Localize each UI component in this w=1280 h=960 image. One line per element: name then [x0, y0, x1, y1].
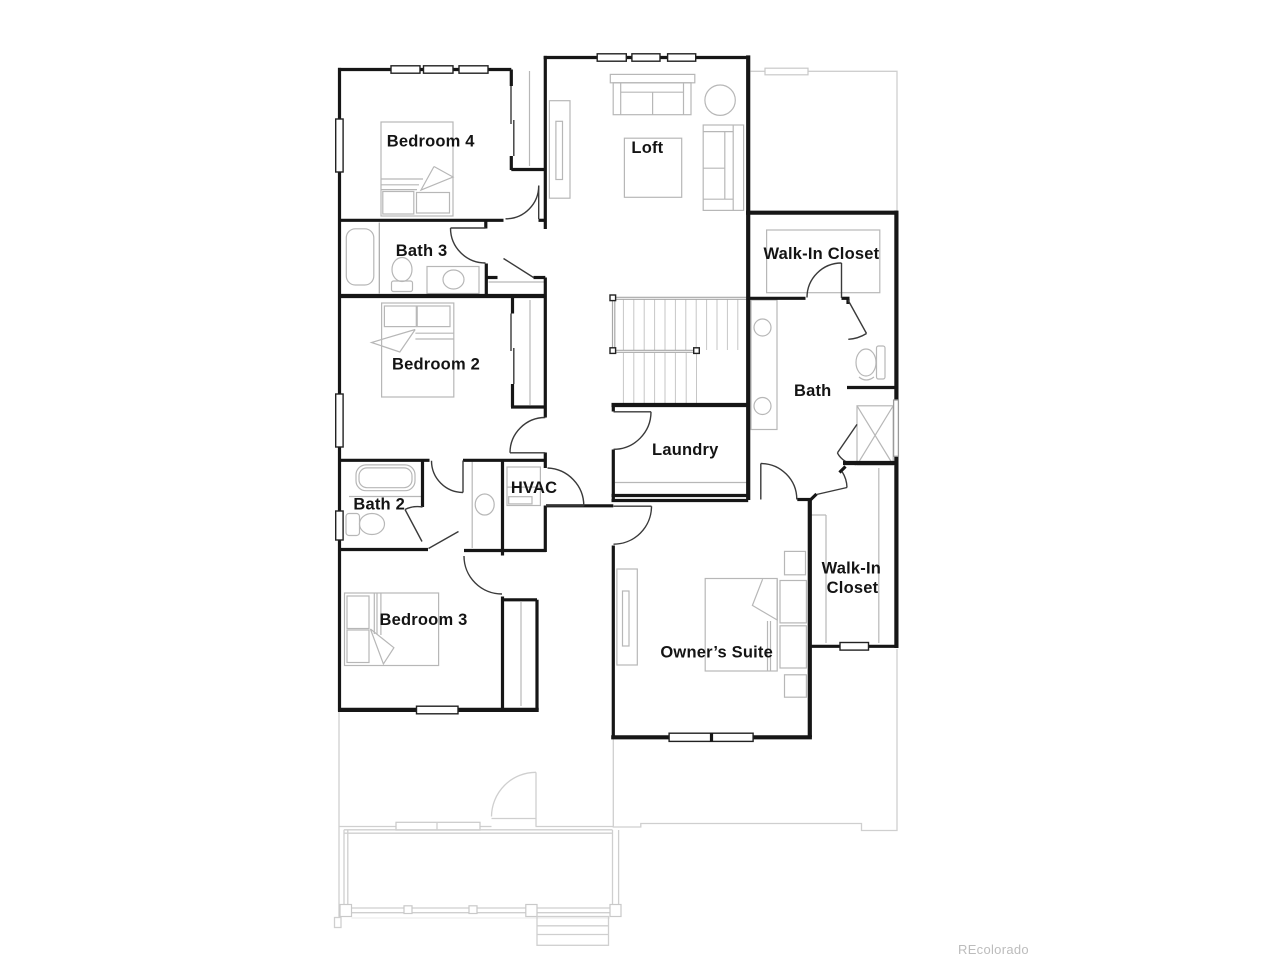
svg-text:Walk-In Closet: Walk-In Closet — [763, 245, 879, 263]
svg-text:Loft: Loft — [631, 139, 663, 157]
svg-text:Closet: Closet — [827, 579, 879, 597]
svg-text:HVAC: HVAC — [511, 479, 557, 497]
svg-text:Bath 2: Bath 2 — [353, 496, 405, 514]
svg-text:Bedroom 3: Bedroom 3 — [380, 611, 468, 629]
svg-text:Bath 3: Bath 3 — [396, 242, 448, 260]
svg-text:Bath: Bath — [794, 382, 831, 400]
svg-text:REcolorado: REcolorado — [958, 942, 1029, 957]
svg-text:Laundry: Laundry — [652, 441, 719, 459]
svg-text:Walk-In: Walk-In — [822, 560, 881, 578]
svg-text:Owner’s Suite: Owner’s Suite — [660, 644, 773, 662]
svg-text:Bedroom 2: Bedroom 2 — [392, 356, 480, 374]
svg-text:Bedroom 4: Bedroom 4 — [387, 133, 476, 151]
